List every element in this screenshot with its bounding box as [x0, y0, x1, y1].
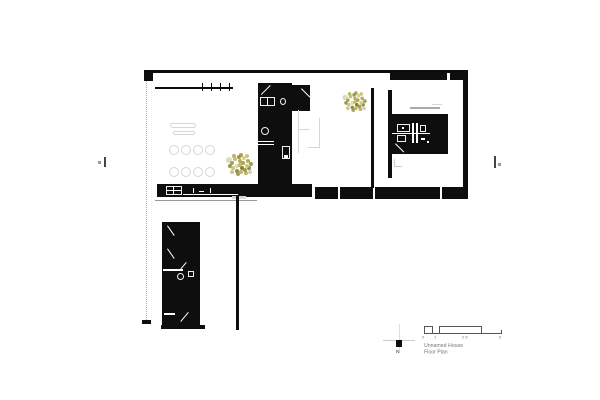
- scale-bar-baseline: [424, 333, 502, 334]
- wing-right-wall: [236, 195, 239, 330]
- counter-line-2: [432, 104, 442, 105]
- toilet-icon: [177, 273, 184, 280]
- window-mullion-4: [229, 83, 230, 91]
- left-room-top-partition: [155, 87, 233, 89]
- north-arrow-icon: [396, 340, 402, 347]
- wing-base-wall: [161, 325, 205, 329]
- dining-chair: [181, 145, 191, 155]
- roof-overhang-dotted-line: [146, 81, 147, 320]
- sink-dot: [402, 127, 404, 129]
- scale-label-1: 1: [434, 335, 436, 340]
- scale-bar-tick-05: [432, 326, 433, 334]
- counter-shadow-line: [155, 200, 257, 201]
- duct-inner: [284, 155, 288, 158]
- wall-middle-right: [371, 88, 374, 188]
- scale-bar-top-seg-2: [439, 326, 481, 327]
- counter-inner-edge: [183, 194, 238, 195]
- basin-icon: [261, 127, 269, 135]
- stove-divider-h: [166, 190, 182, 191]
- drawing-name: Floor Plan: [424, 349, 463, 355]
- sink-tick-2: [199, 191, 204, 192]
- dining-chair: [169, 167, 179, 177]
- section-marker-dot: [498, 163, 501, 166]
- plant-icon: [238, 163, 242, 167]
- wall-top-left-corner: [144, 70, 153, 81]
- scale-bar-tick-0: [424, 326, 425, 334]
- dining-chair: [169, 145, 179, 155]
- dining-chair: [193, 167, 203, 177]
- door-gap-south-2: [373, 187, 375, 199]
- north-label: N: [396, 349, 399, 355]
- fixture-dot-2: [427, 141, 429, 143]
- shelf-line-2: [258, 144, 274, 145]
- desk-outline: [308, 118, 320, 148]
- window-mullion-2: [211, 83, 212, 91]
- section-marker-icon: [494, 156, 496, 168]
- wall-right: [463, 70, 468, 199]
- scale-label-2-5: 2.5: [462, 335, 468, 340]
- window-mullion-1: [202, 83, 203, 91]
- cistern-icon: [188, 271, 194, 277]
- section-marker-dot: [98, 161, 101, 164]
- wc-bowl-icon: [280, 98, 286, 105]
- scale-bar-tick-25: [481, 326, 482, 334]
- shelf-line-1: [258, 141, 274, 142]
- section-marker-icon: [104, 157, 106, 167]
- sink-tick-3: [210, 188, 211, 193]
- furniture-line-v: [298, 110, 299, 153]
- sink-icon-2: [397, 135, 406, 142]
- counter-line-1: [410, 107, 440, 109]
- fixture-glyph: [420, 125, 426, 132]
- dining-chair: [205, 167, 215, 177]
- sofa-outline-2: [173, 131, 195, 135]
- scale-bar-tick-1: [439, 326, 440, 334]
- dining-chair: [193, 145, 203, 155]
- window-mullion-3: [220, 83, 221, 91]
- counter-step-mark: [232, 196, 246, 199]
- fixture-dot-1: [421, 138, 425, 140]
- washer-divider: [267, 97, 268, 106]
- sink-tick-1: [193, 188, 194, 193]
- scale-label-5: 5: [499, 335, 501, 340]
- floor-plan-sheet: N 0 1 2.5 5 Unnamed House Floor Plan: [0, 0, 600, 400]
- scale-bar-top-seg-1: [424, 326, 432, 327]
- scale-label-0: 0: [422, 335, 424, 340]
- title-text-group: Unnamed House Floor Plan: [424, 343, 463, 355]
- door-gap-south-1: [338, 187, 340, 199]
- wall-top-right-band: [390, 73, 447, 80]
- door-gap-south-3: [440, 187, 442, 199]
- floor-mark: [394, 159, 402, 167]
- scale-bar-tick-5: [501, 330, 502, 334]
- sofa-outline-1: [170, 123, 196, 128]
- dining-chair: [181, 167, 191, 177]
- plant-icon: [353, 100, 357, 104]
- block-split-line: [392, 133, 430, 134]
- wing-shelf-line: [164, 313, 175, 315]
- overhang-end-tick: [142, 320, 151, 324]
- dining-chair: [205, 145, 215, 155]
